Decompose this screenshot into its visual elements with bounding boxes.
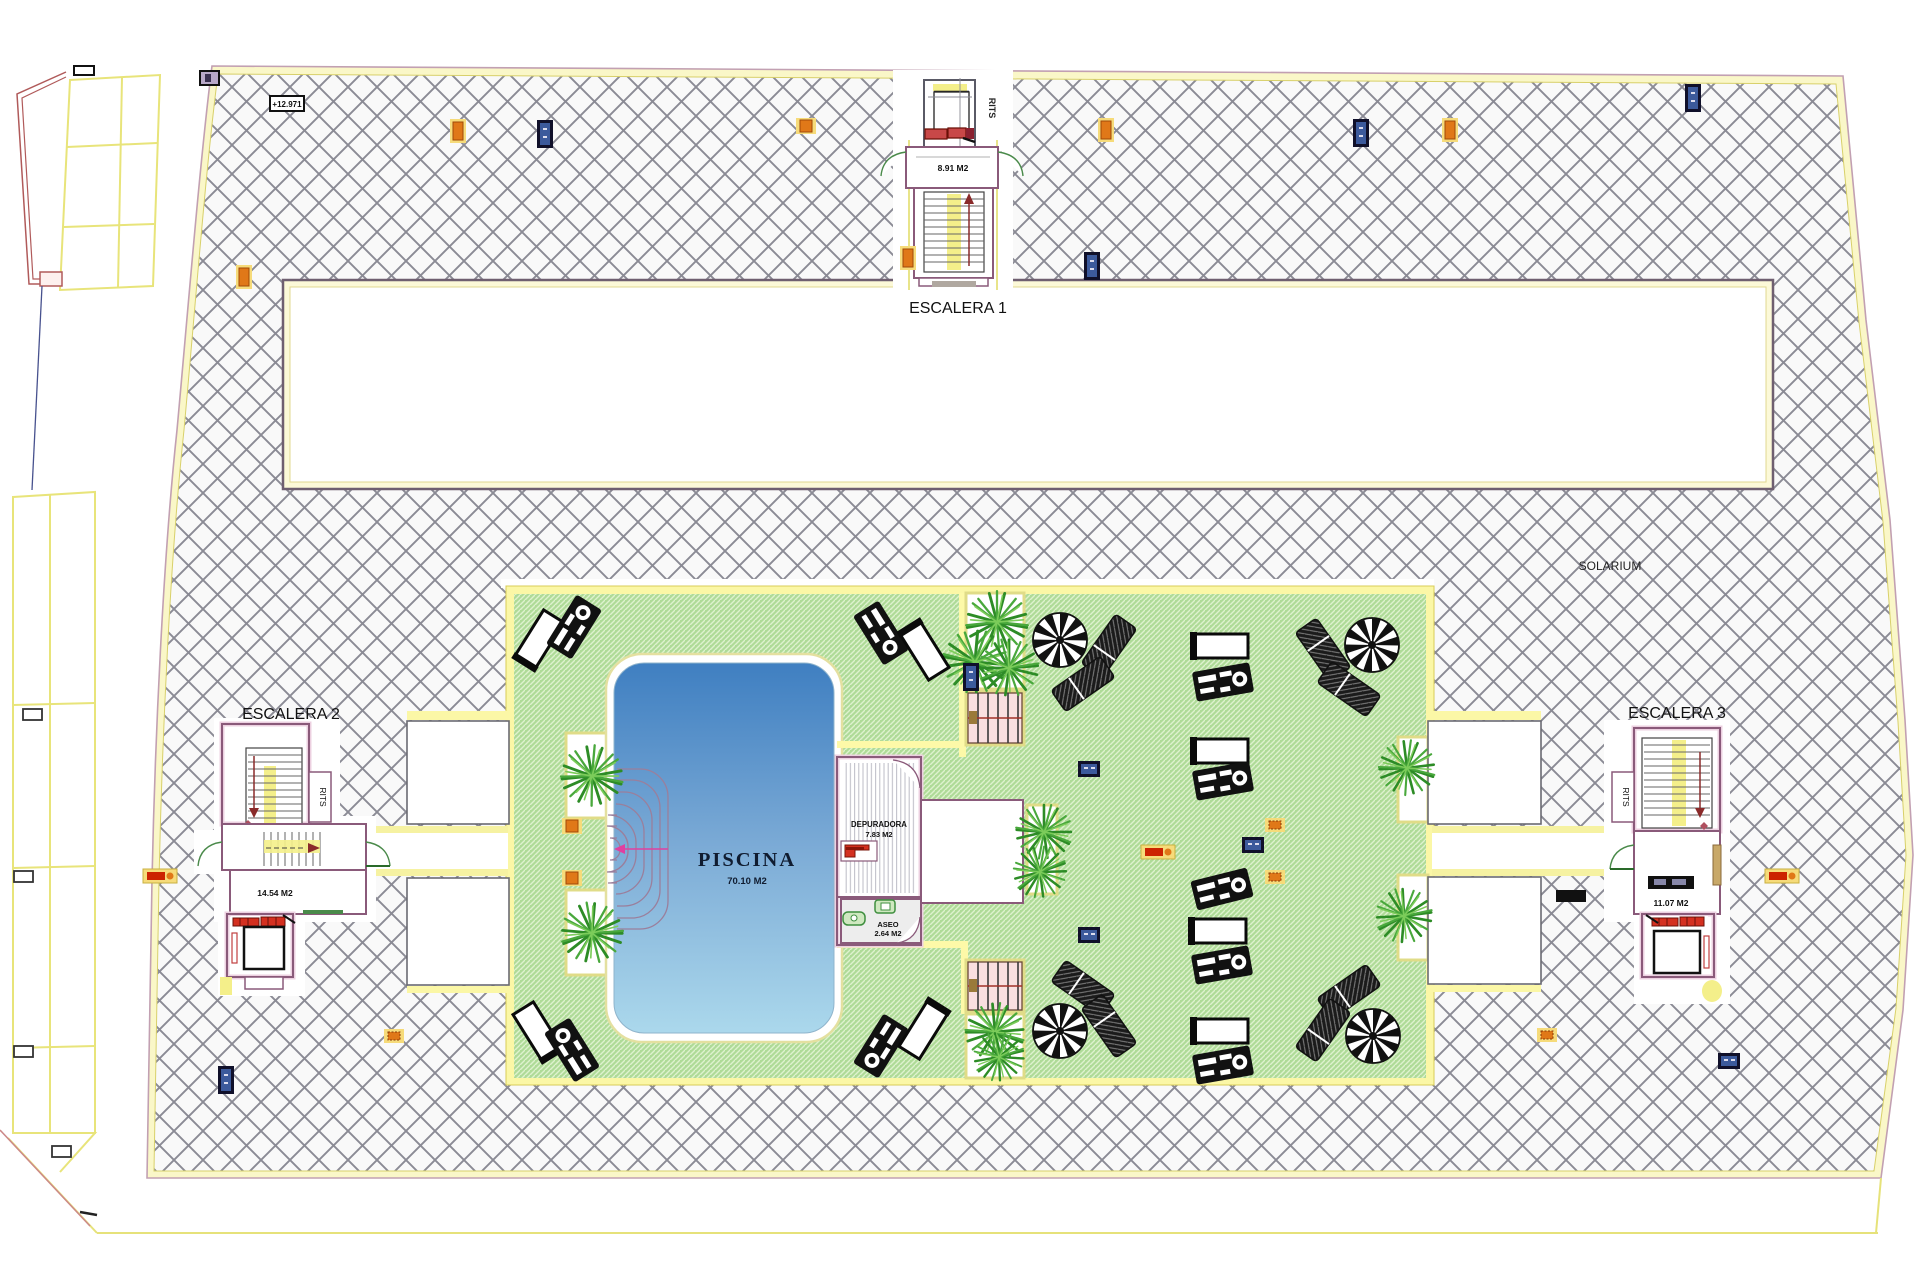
svg-text:SOLARIUM: SOLARIUM [1579,559,1642,573]
svg-text:RITS: RITS [1621,787,1631,807]
svg-text:ESCALERA 2: ESCALERA 2 [242,706,340,723]
svg-text:11.07 M2: 11.07 M2 [1654,898,1689,908]
svg-text:ESCALERA 3: ESCALERA 3 [1628,705,1726,722]
svg-text:8.91 M2: 8.91 M2 [938,163,969,173]
svg-text:14.54 M2: 14.54 M2 [257,888,293,898]
svg-text:DEPURADORA: DEPURADORA [851,820,907,829]
svg-text:RITS: RITS [318,787,328,807]
svg-text:ASEO: ASEO [877,920,898,929]
svg-text:ESCALERA 1: ESCALERA 1 [909,300,1007,317]
svg-text:70.10 M2: 70.10 M2 [727,876,767,887]
svg-text:7.83 M2: 7.83 M2 [865,830,892,839]
svg-text:2.64 M2: 2.64 M2 [874,929,901,938]
svg-text:RITS: RITS [987,98,997,119]
svg-text:+12.971: +12.971 [272,100,302,109]
svg-text:PISCINA: PISCINA [698,849,796,871]
